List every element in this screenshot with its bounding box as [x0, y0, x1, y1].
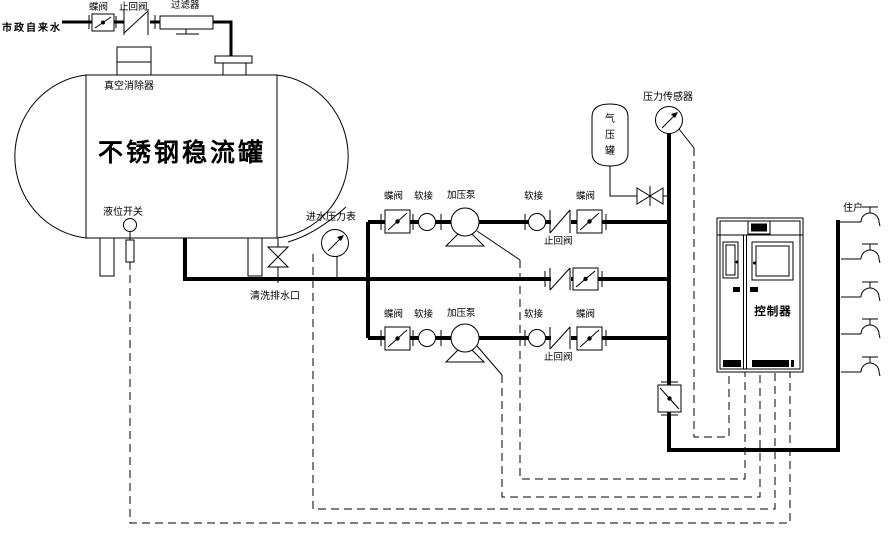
pump-icon [451, 324, 479, 352]
cabinet-vent [752, 360, 789, 367]
label-check-valve: 止回阀 [544, 235, 573, 247]
label-booster-pump: 加压泵 [447, 308, 476, 319]
label-air-tank-char3: 罐 [605, 144, 615, 157]
label-tank-title: 不锈钢稳流罐 [98, 138, 266, 167]
wire-inlet-gauge [313, 254, 775, 509]
label-check-valve: 止回阀 [119, 1, 148, 13]
label-soft-joint: 软接 [414, 190, 434, 202]
tank-support-left [100, 238, 114, 276]
cabinet-badge [733, 287, 740, 292]
butterfly-pivot [395, 219, 399, 223]
faucet-icon [861, 282, 880, 301]
inlet-gauge-icon [322, 230, 349, 257]
piping-diagram: 市政自来水 蝶阀 止回阀 过滤器 真空消除器 不锈钢稳流罐 液位开关 进水压力表… [0, 0, 896, 536]
label-pressure-sensor: 压力传感器 [643, 90, 693, 103]
piping-diagram-page: 市政自来水 蝶阀 止回阀 过滤器 真空消除器 不锈钢稳流罐 液位开关 进水压力表… [0, 0, 896, 536]
level-switch-probe [126, 240, 134, 262]
butterfly-pivot [395, 336, 399, 340]
inlet-flange-legs [223, 63, 246, 75]
wire-upper-pump [520, 260, 745, 479]
label-booster-pump: 加压泵 [447, 190, 476, 201]
label-city-water: 市政自来水 [2, 21, 62, 34]
check-valve-icon [550, 210, 570, 233]
level-switch-icon [124, 219, 137, 232]
label-check-valve: 止回阀 [544, 351, 573, 363]
label-butterfly-valve: 蝶阀 [384, 308, 403, 320]
cabinet-vent [723, 360, 741, 367]
butterfly-pivot [101, 21, 105, 25]
label-butterfly-valve: 蝶阀 [576, 190, 595, 202]
label-butterfly-valve: 蝶阀 [384, 190, 403, 202]
faucet-icon [861, 244, 880, 263]
wire-lower-pump [502, 372, 760, 497]
user-riser [838, 207, 880, 376]
soft-joint-icon [529, 330, 546, 347]
tank-left-cap [15, 75, 86, 238]
faucet-branches [838, 222, 861, 372]
label-drain-port: 清洗排水口 [250, 289, 300, 302]
tank-support-right [248, 238, 262, 276]
label-level-switch: 液位开关 [103, 205, 143, 218]
sensor-signal-leader [679, 129, 694, 148]
check-valve-icon [550, 268, 570, 290]
label-vacuum-breaker: 真空消除器 [104, 79, 154, 92]
label-users: 住户 [843, 201, 863, 214]
controller-cabinet [717, 218, 803, 372]
soft-joint-icon [419, 214, 436, 231]
drain-valve-icon [268, 247, 288, 267]
label-filter: 过滤器 [171, 0, 200, 11]
label-controller: 控制器 [754, 304, 792, 318]
label-soft-joint: 软接 [524, 308, 544, 320]
cabinet-screen-glass [751, 224, 767, 232]
vacuum-breaker-icon [117, 47, 151, 62]
door-handle [753, 262, 756, 265]
filter-icon [160, 16, 213, 29]
pump-icon [451, 208, 479, 236]
soft-joint-icon [419, 330, 436, 347]
cabinet-vent [791, 360, 794, 367]
label-butterfly-valve: 蝶阀 [576, 308, 595, 320]
butterfly-pivot [583, 277, 587, 281]
soft-joint-icon [529, 214, 546, 231]
butterfly-pivot [667, 396, 671, 400]
cabinet-badge [750, 287, 758, 292]
faucet-icon [861, 207, 880, 226]
pressure-sensor-icon [656, 107, 683, 134]
butterfly-pivot [587, 336, 591, 340]
label-air-tank-char1: 气 [605, 112, 615, 125]
faucet-icon [861, 357, 880, 376]
check-valve-icon [550, 327, 570, 349]
air-tank-stub [610, 166, 637, 196]
label-inlet-gauge: 进水压力表 [306, 210, 356, 223]
label-butterfly-valve: 蝶阀 [89, 1, 108, 13]
label-soft-joint: 软接 [414, 308, 434, 320]
main-discharge-valve [658, 382, 681, 415]
faucet-icon [861, 319, 880, 338]
wire-level-switch [130, 262, 790, 523]
inlet-flange-icon [215, 56, 252, 63]
door-handle [736, 261, 739, 264]
vacuum-breaker-base [117, 62, 151, 75]
filter-drain [176, 29, 199, 34]
label-air-tank-char2: 压 [605, 129, 615, 141]
bypass-valves [545, 268, 602, 290]
butterfly-pivot [587, 219, 591, 223]
label-soft-joint: 软接 [524, 190, 544, 202]
cabinet-outer [717, 218, 803, 372]
